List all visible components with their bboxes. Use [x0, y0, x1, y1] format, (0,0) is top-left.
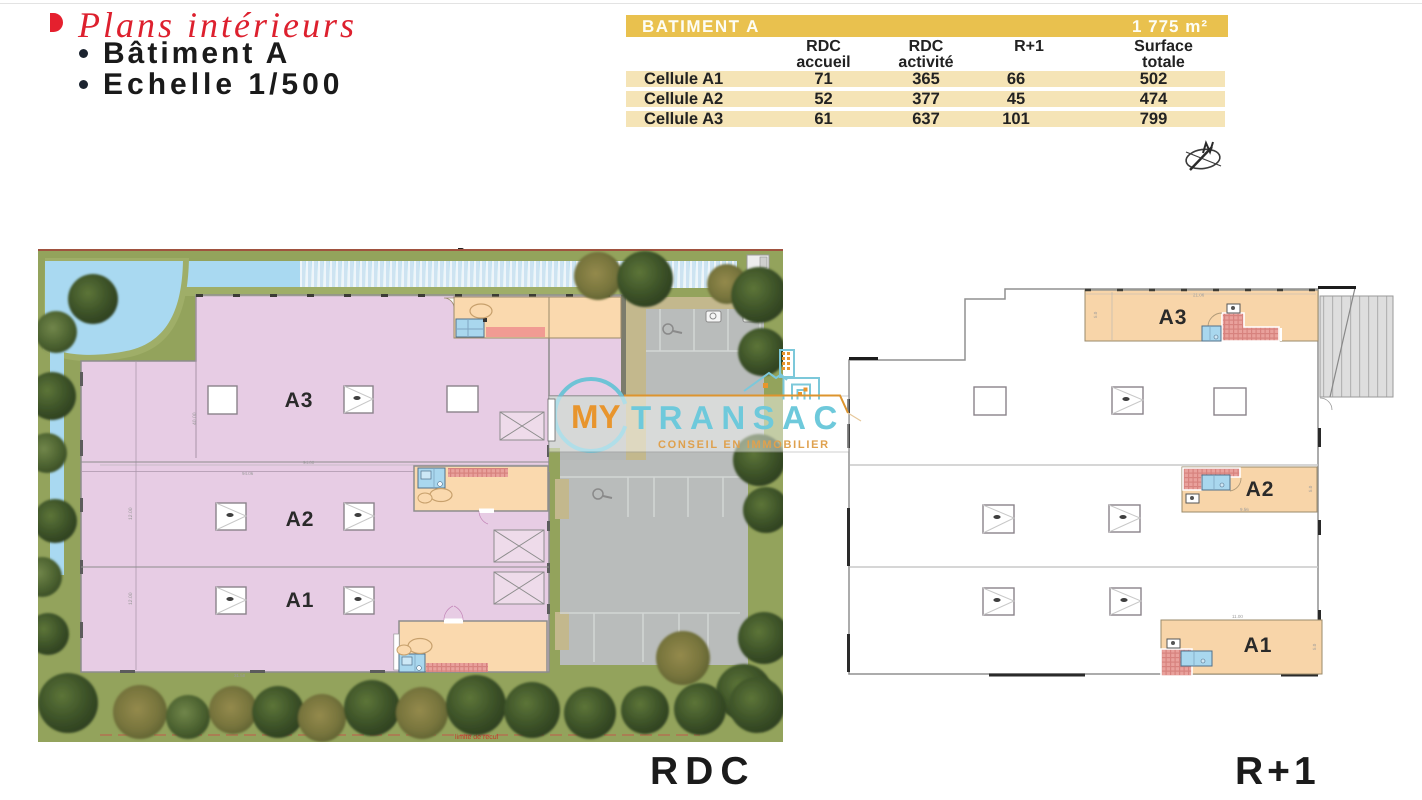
- svg-text:A1: A1: [1244, 634, 1273, 657]
- svg-text:A1: A1: [286, 589, 315, 612]
- svg-text:CONSEIL EN IMMOBILIER: CONSEIL EN IMMOBILIER: [658, 439, 830, 451]
- svg-text:5.0: 5.0: [1308, 485, 1313, 492]
- svg-text:94.06: 94.06: [242, 471, 254, 476]
- svg-text:A2: A2: [1246, 478, 1275, 501]
- svg-text:TRANSAC: TRANSAC: [631, 399, 845, 436]
- svg-text:A2: A2: [286, 508, 315, 531]
- svg-text:12.00: 12.00: [128, 507, 134, 520]
- svg-text:31.58: 31.58: [234, 673, 246, 678]
- svg-text:9.56: 9.56: [1240, 507, 1249, 512]
- svg-text:MY: MY: [571, 398, 621, 435]
- svg-text:5.0: 5.0: [1093, 311, 1098, 318]
- svg-text:12.00: 12.00: [128, 592, 134, 605]
- svg-text:21.06: 21.06: [1193, 293, 1205, 298]
- svg-text:94.00: 94.00: [303, 460, 315, 465]
- svg-text:A3: A3: [285, 389, 314, 412]
- svg-text:A3: A3: [1159, 306, 1188, 329]
- svg-text:11.00: 11.00: [1232, 614, 1243, 619]
- svg-text:40.00: 40.00: [192, 412, 198, 425]
- svg-text:5.0: 5.0: [1312, 643, 1317, 650]
